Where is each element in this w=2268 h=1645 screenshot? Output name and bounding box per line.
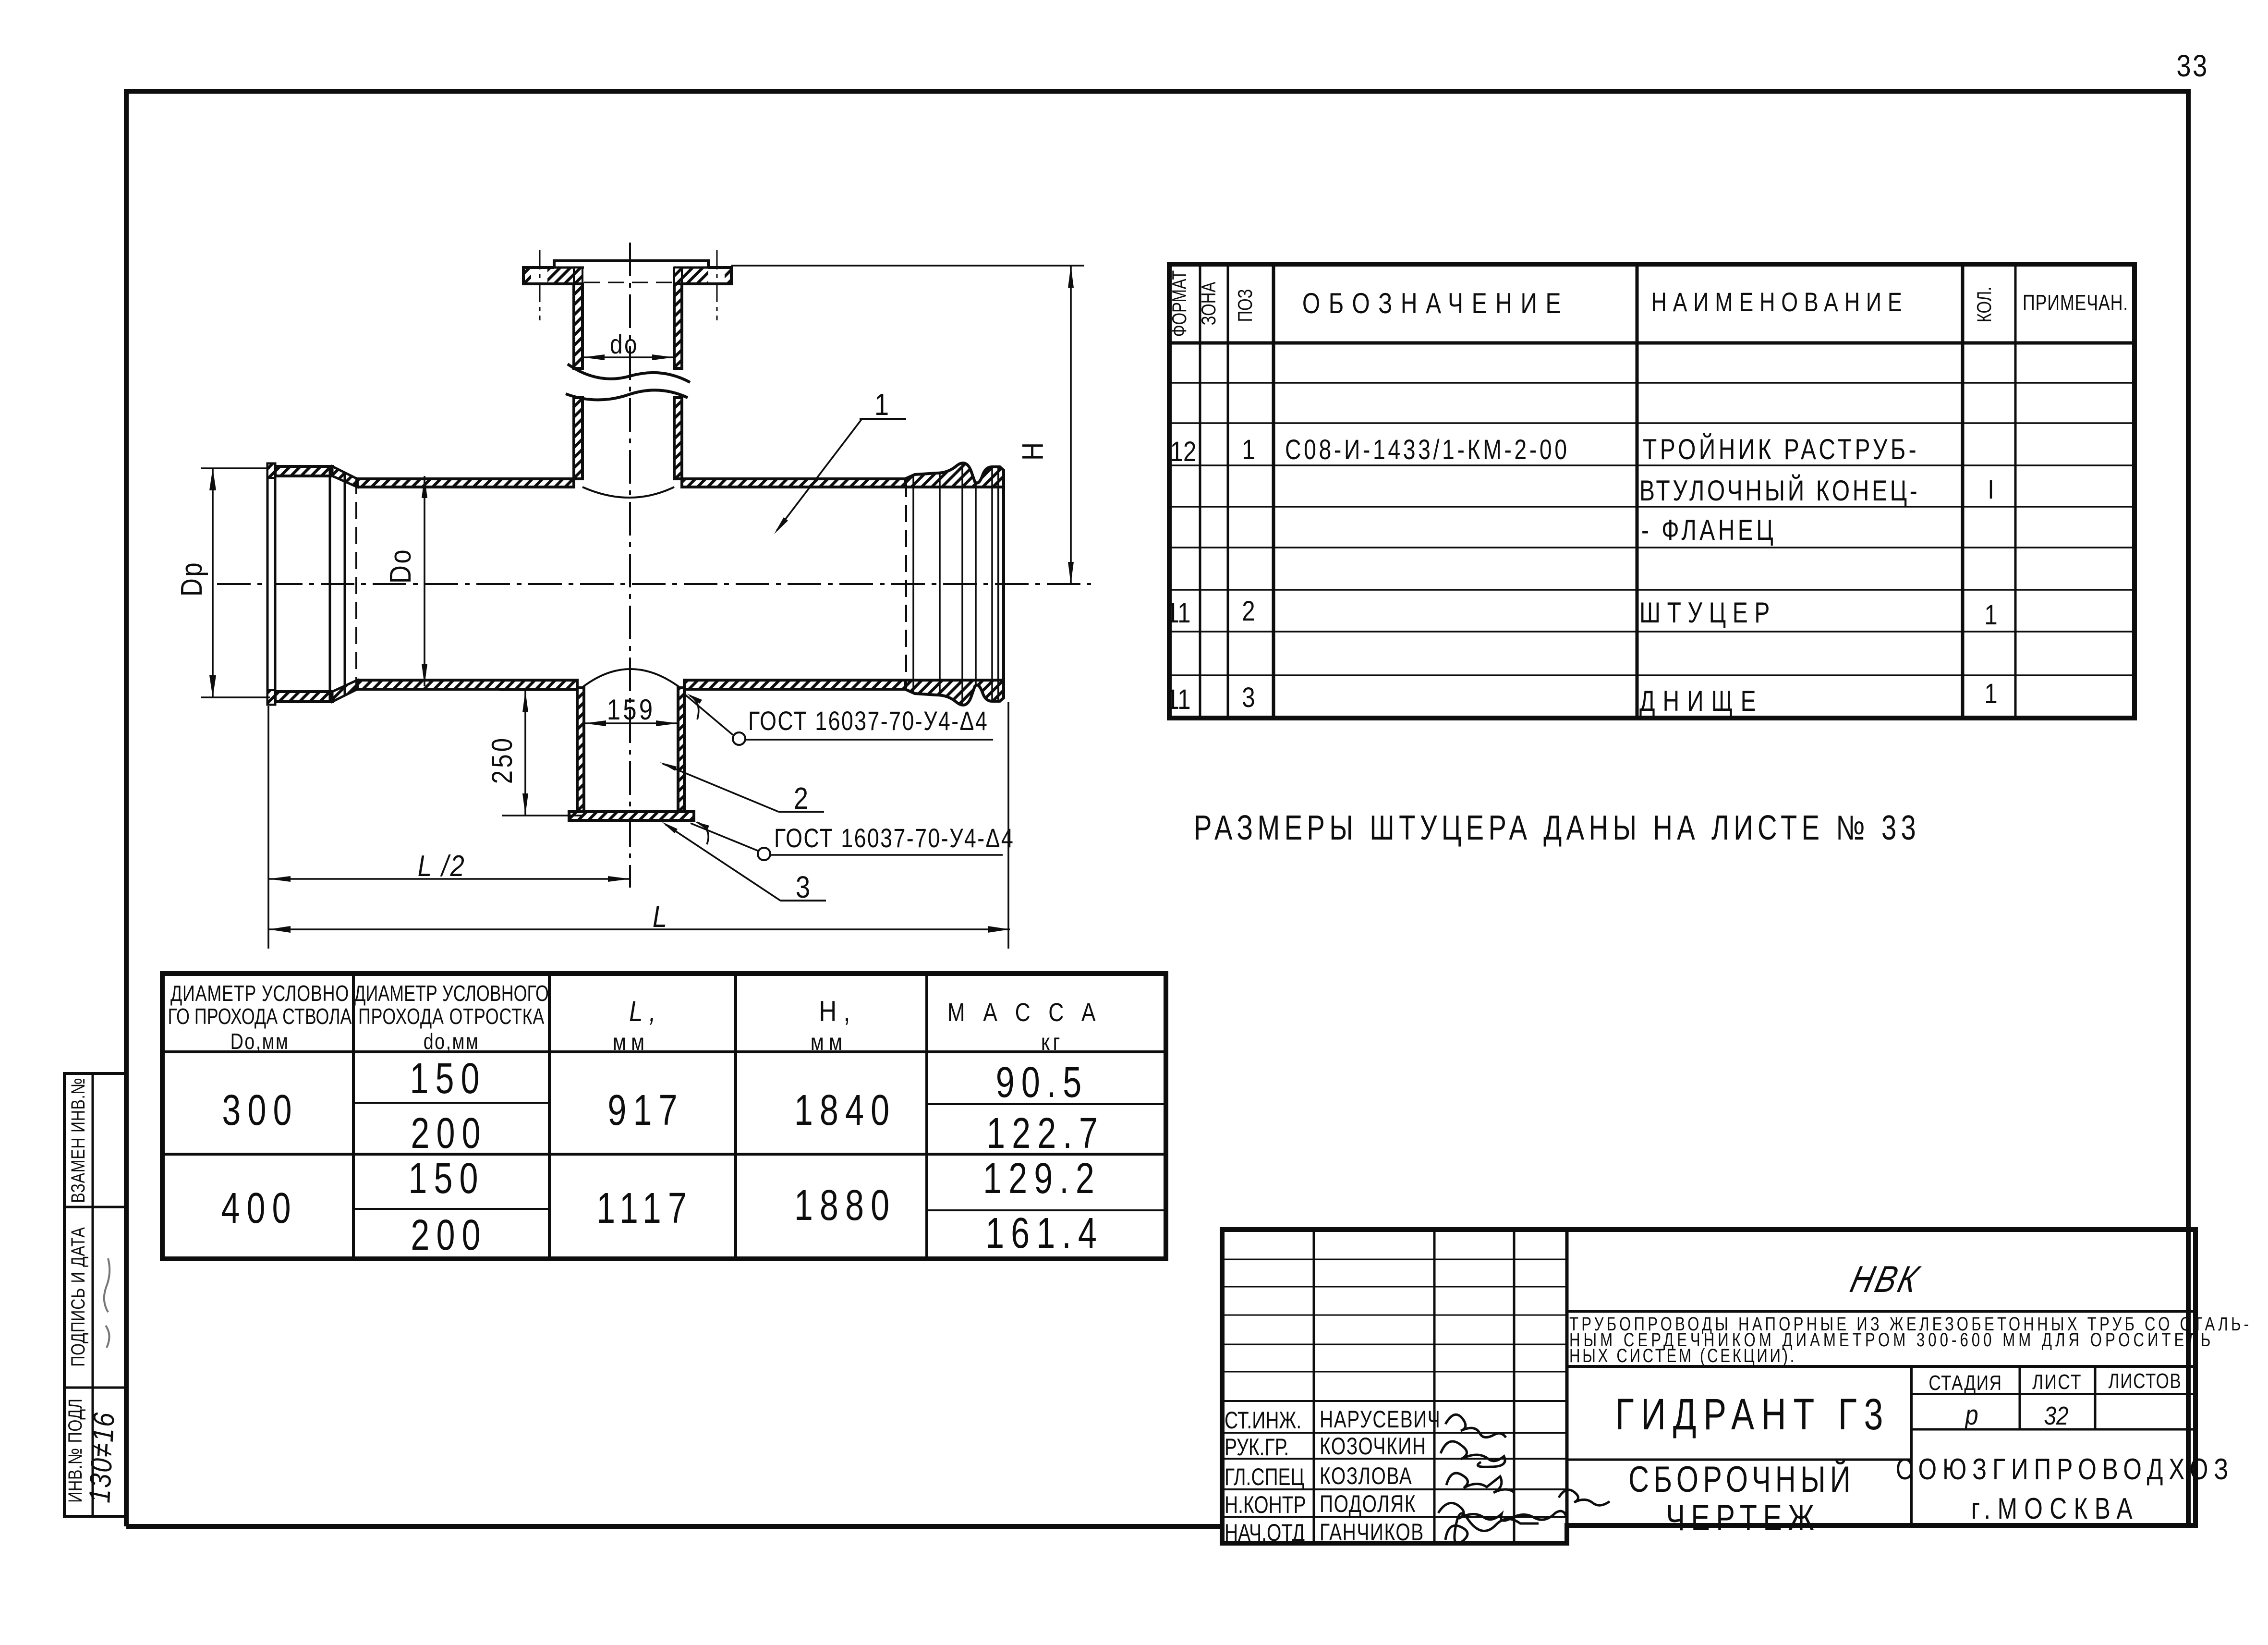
svg-text:ТРОЙНИК РАСТРУБ-: ТРОЙНИК РАСТРУБ-: [1643, 433, 1919, 465]
svg-text:122.7: 122.7: [986, 1109, 1104, 1158]
svg-text:150: 150: [410, 1055, 486, 1103]
svg-text:ГОСТ 16037-70-У4-Δ4: ГОСТ 16037-70-У4-Δ4: [774, 823, 1014, 853]
svg-text:СБОРОЧНЫЙ: СБОРОЧНЫЙ: [1628, 1459, 1855, 1500]
svg-text:3: 3: [1242, 682, 1255, 713]
svg-text:1: 1: [1984, 678, 1997, 709]
svg-text:ЗОНА: ЗОНА: [1197, 281, 1220, 325]
svg-text:ДНИЩЕ: ДНИЩЕ: [1639, 685, 1764, 717]
svg-text:ПРОХОДА ОТРОСТКА: ПРОХОДА ОТРОСТКА: [358, 1004, 545, 1029]
svg-text:200: 200: [411, 1211, 487, 1259]
svg-text:ГО ПРОХОДА СТВОЛА: ГО ПРОХОДА СТВОЛА: [168, 1004, 352, 1029]
svg-text:ФОРМАТ: ФОРМАТ: [1168, 270, 1190, 337]
svg-text:ГОСТ 16037-70-У4-Δ4: ГОСТ 16037-70-У4-Δ4: [748, 706, 988, 736]
svg-text:33: 33: [2176, 49, 2208, 83]
svg-text:С08-И-1433/1-КМ-2-00: С08-И-1433/1-КМ-2-00: [1285, 434, 1570, 465]
svg-text:11: 11: [1166, 684, 1190, 715]
svg-text:КОЗЛОВА: КОЗЛОВА: [1320, 1462, 1412, 1489]
svg-text:300: 300: [222, 1086, 298, 1134]
svg-text:3: 3: [796, 870, 810, 904]
svg-text:ЧЕРТЕЖ: ЧЕРТЕЖ: [1666, 1498, 1820, 1538]
svg-text:Н: Н: [1017, 442, 1050, 461]
svg-text:1: 1: [874, 387, 889, 422]
svg-text:ДИАМЕТР УСЛОВНОГО: ДИАМЕТР УСЛОВНОГО: [354, 981, 549, 1006]
svg-text:ДИАМЕТР УСЛОВНО: ДИАМЕТР УСЛОВНО: [170, 981, 349, 1006]
svg-text:НАЧ.ОТД: НАЧ.ОТД: [1225, 1519, 1305, 1546]
svg-text:12: 12: [1170, 436, 1197, 467]
svg-text:мм: мм: [811, 1030, 847, 1055]
svg-text:2: 2: [794, 781, 808, 816]
svg-text:СОЮЗГИПРОВОДХОЗ: СОЮЗГИПРОВОДХОЗ: [1896, 1452, 2234, 1486]
svg-text:СТАДИЯ: СТАДИЯ: [1928, 1371, 2002, 1395]
svg-text:РАЗМЕРЫ ШТУЦЕРА ДАНЫ НА ЛИ: РАЗМЕРЫ ШТУЦЕРА ДАНЫ НА ЛИСТЕ № 33: [1194, 808, 1920, 847]
svg-text:1880: 1880: [794, 1182, 896, 1230]
svg-text:1840: 1840: [794, 1086, 896, 1134]
svg-text:dо: dо: [610, 329, 639, 359]
svg-text:Dо: Dо: [384, 548, 417, 584]
svg-text:Dо,мм: Dо,мм: [230, 1029, 290, 1053]
svg-text:НАРУСЕВИЧ: НАРУСЕВИЧ: [1320, 1405, 1441, 1433]
svg-text:159: 159: [607, 694, 655, 726]
svg-text:Н.КОНТР: Н.КОНТР: [1225, 1491, 1306, 1518]
svg-text:ВТУЛОЧНЫЙ КОНЕЦ-: ВТУЛОЧНЫЙ КОНЕЦ-: [1639, 475, 1920, 507]
svg-text:КОЗОЧКИН: КОЗОЧКИН: [1320, 1432, 1427, 1460]
svg-text:НЫХ СИСТЕМ (СЕКЦИИ).: НЫХ СИСТЕМ (СЕКЦИИ).: [1569, 1345, 1796, 1366]
svg-text:1: 1: [1242, 434, 1255, 465]
svg-text:32: 32: [2044, 1401, 2068, 1430]
svg-text:ИНВ.№ ПОДЛ: ИНВ.№ ПОДЛ: [64, 1398, 86, 1502]
svg-text:кг: кг: [1041, 1030, 1063, 1055]
svg-text:ОБОЗНАЧЕНИЕ: ОБОЗНАЧЕНИЕ: [1302, 287, 1569, 319]
svg-text:р: р: [1964, 1400, 1978, 1431]
svg-text:СТ.ИНЖ.: СТ.ИНЖ.: [1225, 1406, 1301, 1434]
svg-text:917: 917: [607, 1086, 684, 1134]
svg-text:2: 2: [1242, 596, 1255, 627]
svg-text:ПОДПИСЬ И ДАТА: ПОДПИСЬ И ДАТА: [67, 1227, 89, 1366]
svg-text:Н ,: Н ,: [819, 995, 850, 1027]
svg-text:ПРИМЕЧАН.: ПРИМЕЧАН.: [2023, 291, 2128, 315]
svg-text:ГИДРАНТ Г3: ГИДРАНТ Г3: [1615, 1389, 1891, 1439]
svg-text:ШТУЦЕР: ШТУЦЕР: [1639, 597, 1776, 629]
svg-text:ЛИСТОВ: ЛИСТОВ: [2109, 1369, 2182, 1393]
svg-text:L ,: L ,: [629, 995, 656, 1027]
svg-text:Dр: Dр: [175, 561, 208, 597]
svg-text:161.4: 161.4: [985, 1209, 1104, 1257]
svg-text:мм: мм: [613, 1030, 649, 1055]
svg-text:11: 11: [1166, 597, 1190, 629]
svg-text:200: 200: [411, 1109, 487, 1158]
svg-text:L /2: L /2: [418, 850, 466, 883]
svg-text:г.МОСКВА: г.МОСКВА: [1971, 1492, 2139, 1525]
svg-text:129.2: 129.2: [983, 1155, 1101, 1203]
svg-text:I: I: [1988, 475, 1994, 504]
svg-text:ВЗАМЕН ИНВ.№: ВЗАМЕН ИНВ.№: [67, 1077, 89, 1203]
svg-text:dо,мм: dо,мм: [424, 1029, 480, 1053]
svg-text:КОЛ.: КОЛ.: [1973, 287, 1995, 322]
svg-text:90.5: 90.5: [996, 1059, 1089, 1107]
svg-text:150: 150: [408, 1155, 485, 1203]
svg-text:400: 400: [221, 1184, 297, 1232]
svg-text:ГАНЧИКОВ: ГАНЧИКОВ: [1320, 1518, 1424, 1546]
svg-text:130≠16: 130≠16: [83, 1411, 121, 1504]
svg-text:НАИМЕНОВАНИЕ: НАИМЕНОВАНИЕ: [1651, 287, 1908, 317]
svg-text:- ФЛАНЕЦ: - ФЛАНЕЦ: [1641, 514, 1776, 546]
svg-text:L: L: [653, 899, 667, 934]
svg-text:1117: 1117: [596, 1184, 693, 1232]
svg-text:ПОЗ: ПОЗ: [1234, 289, 1256, 322]
svg-text:250: 250: [486, 736, 518, 784]
svg-text:ПОДОЛЯК: ПОДОЛЯК: [1320, 1490, 1416, 1517]
svg-text:ГЛ.СПЕЦ: ГЛ.СПЕЦ: [1225, 1463, 1304, 1490]
svg-text:РУК.ГР.: РУК.ГР.: [1225, 1433, 1289, 1461]
svg-text:ЛИСТ: ЛИСТ: [2032, 1370, 2082, 1394]
svg-text:МАССА: МАССА: [947, 998, 1114, 1027]
svg-text:НВК: НВК: [1846, 1258, 1925, 1300]
svg-text:1: 1: [1984, 599, 1997, 631]
